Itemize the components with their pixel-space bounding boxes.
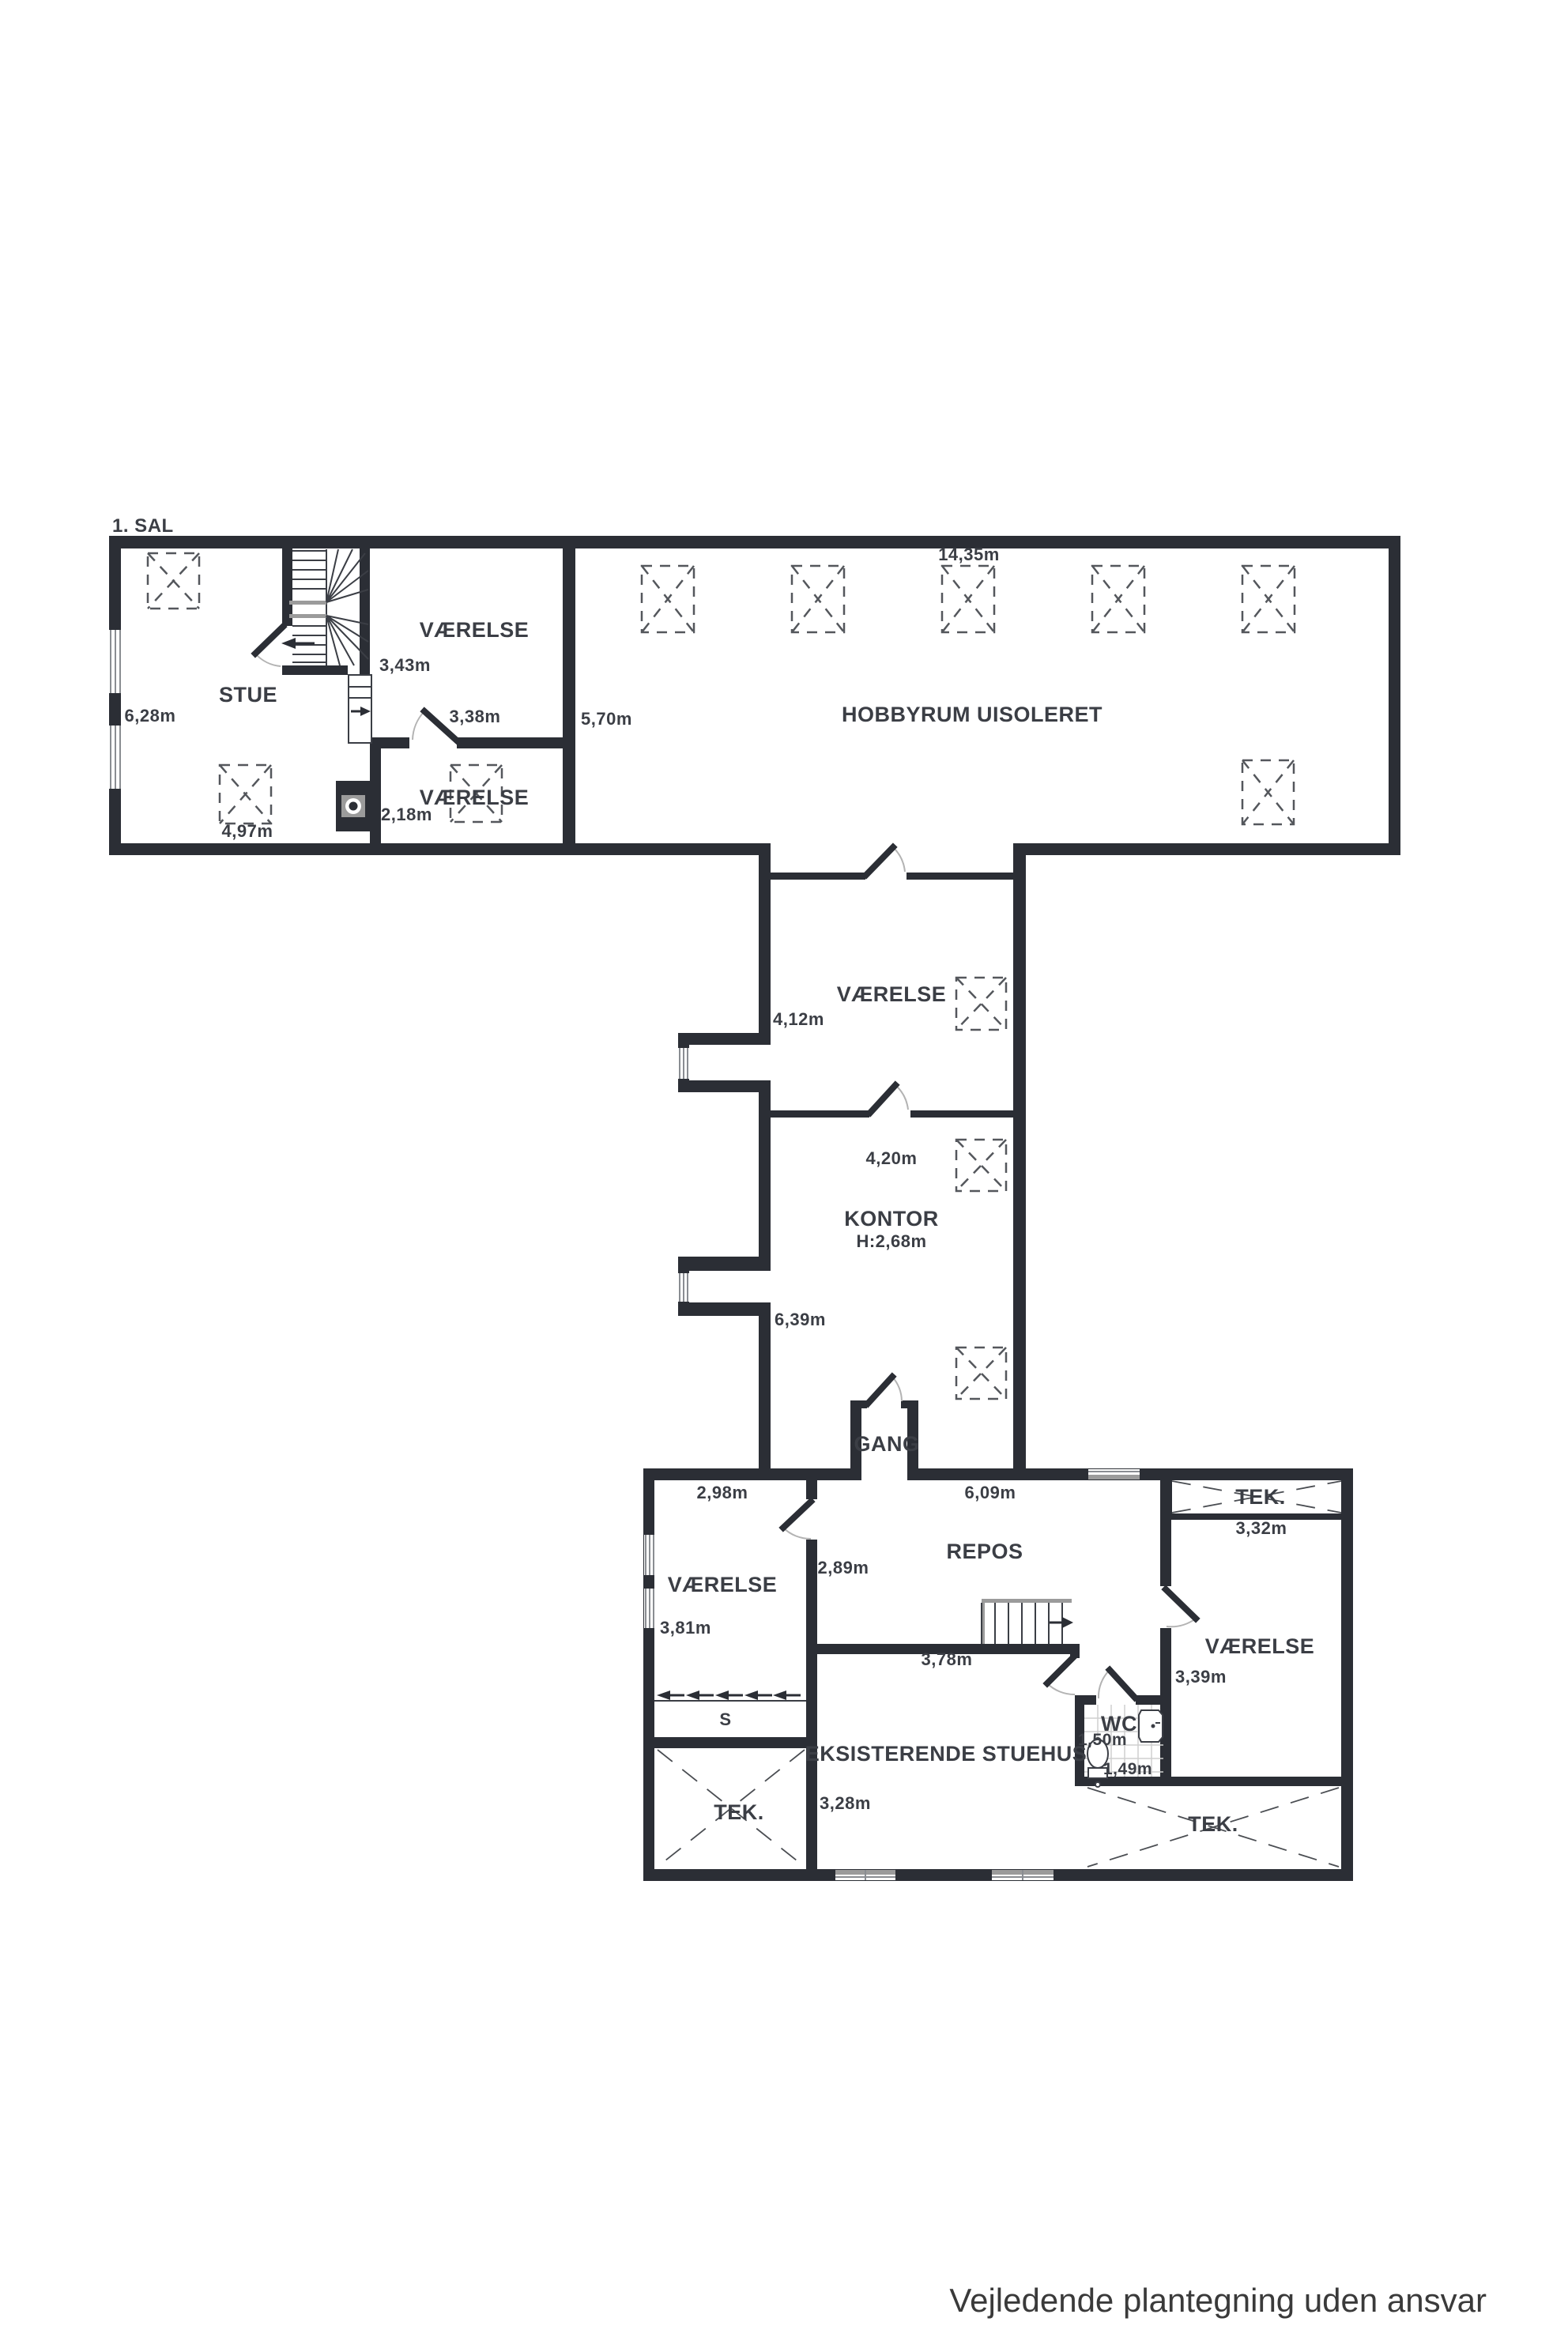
dim-6-28: 6,28m [125,706,176,726]
dim-3-28: 3,28m [820,1793,871,1813]
room-label-vaerelse-mellem: VÆRELSE [420,786,530,809]
roof-window [942,566,994,632]
dim-1-49: 1,49m [1103,1760,1152,1778]
dim-5-70: 5,70m [581,709,632,729]
room-label-s-closet: S [719,1709,731,1729]
room-label-kontor: KONTOR [844,1207,939,1231]
disclaimer-text: Vejledende plantegning uden ansvar [949,2282,1487,2319]
window-vaerelse-left-lower [644,1589,654,1628]
door-vaerelse-mid-kontor [870,1085,908,1113]
room-label-tek-right: TEK. [1188,1812,1238,1836]
roof-window [1092,566,1144,632]
staircase-repos [982,1599,1073,1644]
roof-window [1242,760,1294,824]
dim-4-12: 4,12m [773,1009,824,1029]
dim-3-43: 3,43m [379,655,431,675]
window-stue-upper [108,630,122,693]
door-wc [1099,1670,1135,1698]
roof-window [956,1347,1006,1399]
sliding-closet [654,1690,806,1701]
room-label-vaerelse-left: VÆRELSE [668,1573,778,1596]
roof-window [956,978,1006,1030]
room-label-stue: STUE [219,683,277,707]
roof-windows [148,553,1295,1399]
stair-direction-arrow-up [281,638,315,649]
dim-14-35: 14,35m [938,545,1000,564]
door-kontor-gang [868,1377,902,1404]
room-label-gang: GANG [854,1432,920,1456]
room-label-tek-top: TEK. [1235,1485,1286,1509]
dim-4-97: 4,97m [222,821,273,841]
room-label-vaerelse-mid: VÆRELSE [837,982,947,1006]
windows [108,630,1140,1880]
window-repos-top [1088,1469,1140,1479]
window-stuehus-left [835,1870,895,1880]
floorplan-drawing: 1. SAL STUE VÆRELSE VÆRELSE HOBBYRUM UIS… [0,0,1568,2352]
doors [255,627,1196,1698]
door-stue-stairs [255,627,283,666]
dim-6-39: 6,39m [775,1310,826,1329]
door-repos-vaerelse-right [1166,1589,1196,1626]
window-stuehus-right [992,1870,1053,1880]
dim-3-39: 3,39m [1175,1667,1227,1687]
room-label-hobbyrum: HOBBYRUM UISOLERET [842,703,1102,726]
chimney [336,781,371,831]
room-label-stuehus: EKSISTERENDE STUEHUS [805,1742,1087,1766]
roof-window [642,566,694,632]
roof-window [220,765,271,824]
wc-sink [1139,1710,1163,1742]
window-stue-lower [108,726,122,789]
roof-window [792,566,844,632]
dim-2-98: 2,98m [697,1483,748,1502]
roof-window [148,553,199,609]
dim-2-89: 2,89m [818,1558,869,1577]
dim-4-20: 4,20m [866,1148,918,1168]
window-vaerelse-mid [677,1048,690,1079]
dim-6-09: 6,09m [965,1483,1016,1502]
room-label-vaerelse-right: VÆRELSE [1205,1634,1315,1658]
door-repos-stuehus [1047,1657,1075,1694]
room-label-tek-left: TEK. [714,1800,764,1824]
closet-arrows [657,1690,801,1700]
dim-3-81: 3,81m [660,1618,711,1638]
window-vaerelse-left-upper [644,1535,654,1575]
stair-strip-below [349,675,371,743]
dim-2-18: 2,18m [381,805,432,824]
roof-window [1242,566,1295,632]
window-kontor [677,1273,690,1302]
room-label-kontor-height: H:2,68m [856,1231,926,1251]
door-hobbyrum-corridor [866,847,905,875]
dim-3-38: 3,38m [450,707,501,726]
room-label-vaerelse-top: VÆRELSE [420,618,530,642]
dim-3-78: 3,78m [922,1649,973,1669]
door-repos-vaerelse-left [783,1502,811,1539]
staircase-top [281,549,371,743]
floorplan-page: 1. SAL STUE VÆRELSE VÆRELSE HOBBYRUM UIS… [0,0,1568,2352]
dim-1-50: 1,50m [1078,1731,1127,1749]
plan-title: 1. SAL [112,515,174,537]
roof-window [956,1140,1006,1191]
dim-3-32: 3,32m [1236,1518,1287,1538]
room-label-repos: REPOS [946,1540,1023,1563]
